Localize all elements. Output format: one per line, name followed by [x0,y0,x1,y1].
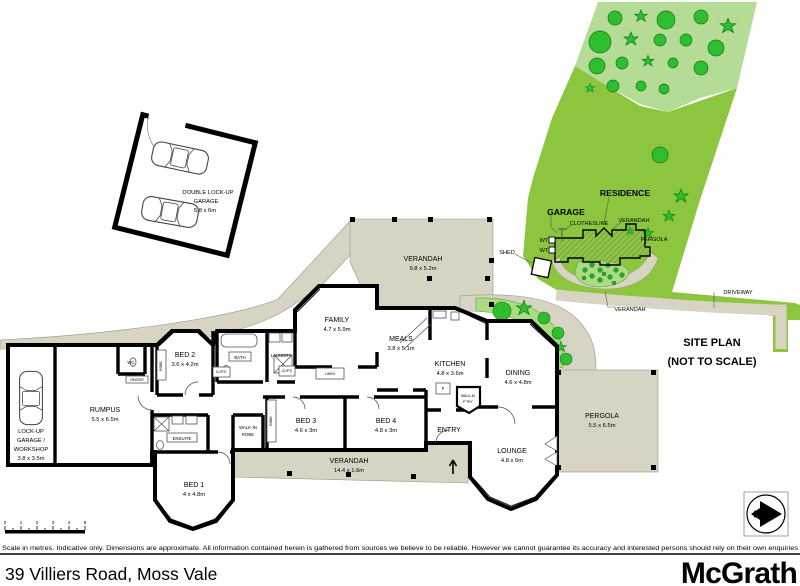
room-label-kitchen: KITCHEN [435,361,466,368]
room-dims-dining: 4.6 x 4.8m [504,380,531,386]
label-walkin-pantry-2: P'TRY [463,400,473,404]
compass-letter: N [751,510,765,519]
room-dims-kitchen: 4.8 x 3.6m [436,371,463,377]
label-walkin-robe-1: WALK-IN [239,425,257,430]
room-label-entry: ENTRY [437,427,461,434]
room-label-lockup-1: LOCK-UP [18,429,44,435]
site-label-driveway: DRIVEWAY [723,290,752,296]
floorplan-svg: RESIDENCE GARAGE CLOTHESLINE VERANDAH PE… [0,0,800,586]
site-label-clothesline: CLOTHESLINE [570,221,609,227]
disclaimer-text: Scale in metres. Indicative only. Dimens… [2,545,798,552]
room-label-rumpus: RUMPUS [90,407,121,414]
address-text: 39 Villiers Road, Moss Vale [5,564,217,584]
site-label-verandah-bottom: VERANDAH [614,307,645,313]
room-label-bed4: BED 4 [376,418,396,425]
room-label-family: FAMILY [325,317,350,324]
detached-garage-label-1: DOUBLE LOCK-UP [182,190,233,196]
room-label-bed3: BED 3 [296,418,316,425]
site-water-tank-2 [549,247,555,253]
label-robe-bed3: ROBE [269,415,273,425]
scale-tick-3: 3 [52,520,55,525]
room-label-bed2: BED 2 [175,352,195,359]
label-bath: BATH [234,355,245,360]
label-ensuite: ENSUITE [173,436,192,441]
detached-garage-dims: 5.8 x 6m [194,208,216,214]
compass: N [744,492,788,536]
site-label-verandah-top: VERANDAH [618,218,649,224]
room-dims-bed2: 3.6 x 4.2m [171,362,198,368]
room-label-meals: MEALS [389,336,413,343]
site-plan-subtitle: (NOT TO SCALE) [667,356,756,368]
room-dims-bed1: 4 x 4.8m [183,492,205,498]
label-fridge: F [442,386,445,391]
label-cupd2: CUP'D [282,369,293,373]
site-label-garage: GARAGE [547,207,585,217]
label-walkin-pantry-1: WALK-IN [461,394,476,398]
site-label-residence: RESIDENCE [600,188,650,198]
room-dims-pergola: 5.5 x 6.5m [588,423,615,429]
room-label-lounge: LOUNGE [497,448,527,455]
site-label-pergola: PERGOLA [640,237,667,243]
site-label-shed: SHED [499,250,515,256]
room-label-dining: DINING [506,370,531,377]
room-label-lockup-3: WORKSHOP [14,447,49,453]
site-shed [531,258,551,278]
site-label-wt2: WT [540,248,549,254]
room-dims-lounge: 4.8 x 6m [501,458,523,464]
room-dims-meals: 3.8 x 5.1m [387,346,414,352]
floorplan-page: RESIDENCE GARAGE CLOTHESLINE VERANDAH PE… [0,0,800,586]
label-robe-bed2: ROBE [159,360,163,370]
room-dims-lockup: 3.8 x 3.5m [17,456,44,462]
room-dims-verandah-top: 9.8 x 5.2m [409,266,436,272]
site-water-tank-1 [549,237,555,243]
site-label-wt1: WT [540,238,549,244]
scale-bar: 0 1 2 3 4 5 [4,520,87,534]
label-walkin-robe-2: ROBE [242,432,254,437]
room-label-verandah-top: VERANDAH [404,256,443,263]
workshop-car [20,371,43,424]
detached-garage-label-2: GARAGE [194,199,219,205]
site-plan-title: SITE PLAN [683,337,741,349]
label-heater: HEATER [130,378,144,382]
scale-tick-2: 2 [36,520,39,525]
room-label-bed1: BED 1 [184,482,204,489]
label-laundry: LAUNDRY [271,353,292,358]
label-cupd1: CUP'D [216,370,227,374]
mcgrath-logo: McGrath [681,557,797,586]
room-dims-family: 4.7 x 5.9m [323,327,350,333]
room-label-pergola: PERGOLA [585,413,619,420]
label-linen: LINEN [325,372,336,376]
label-wc: WC [127,360,134,365]
scale-tick-0: 0 [4,520,7,525]
room-label-verandah-bottom: VERANDAH [330,458,369,465]
room-dims-rumpus: 5.5 x 6.5m [91,417,118,423]
room-label-lockup-2: GARAGE / [17,438,45,444]
detached-garage: DOUBLE LOCK-UP GARAGE 5.8 x 6m [115,110,257,255]
room-dims-verandah-bottom: 14.4 x 1.6m [334,468,364,474]
scale-tick-4: 4 [68,520,71,525]
scale-tick-5: 5 [84,520,87,525]
scale-tick-1: 1 [20,520,23,525]
room-dims-bed3: 4.6 x 3m [295,428,317,434]
room-dims-bed4: 4.8 x 3m [375,428,397,434]
